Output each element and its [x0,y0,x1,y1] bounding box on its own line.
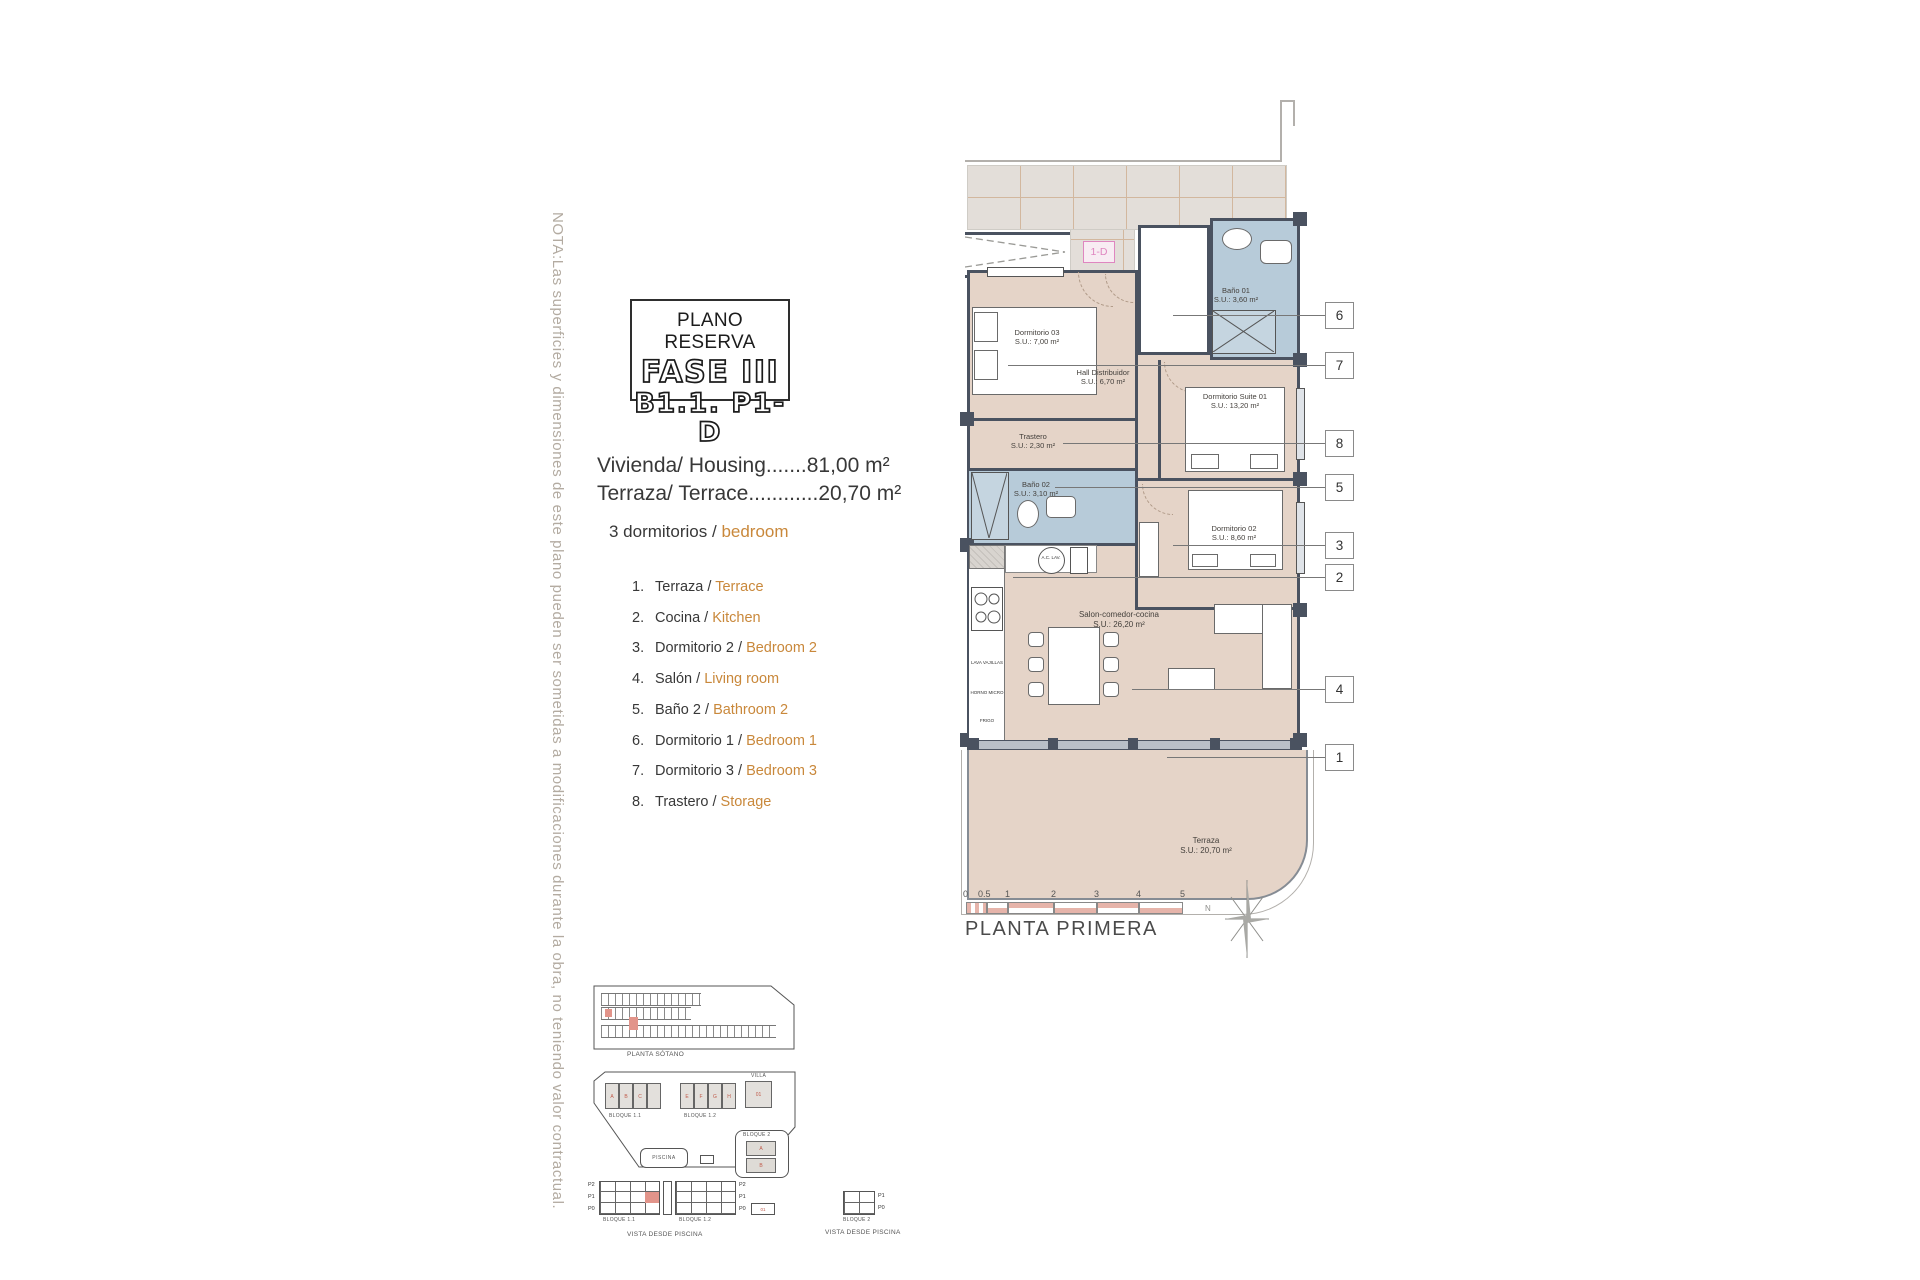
column [1293,212,1307,226]
pillow-icon [1250,454,1278,469]
unit-e: E [680,1083,694,1109]
leader-line [1167,757,1325,758]
room-label-trastero: TrasteroS.U.: 2,30 m² [1002,432,1064,450]
scale-seg [987,902,1008,914]
shower-icon [971,472,1009,540]
wall [1158,360,1161,480]
scale-seg [1097,902,1139,914]
parking-row [601,993,701,1006]
toilet-icon [1017,500,1039,528]
room-label-terraza: TerrazaS.U.: 20,70 m² [1170,836,1242,855]
chair-icon [1103,657,1119,672]
wall [1135,478,1138,610]
block2-unit-a: A [746,1141,776,1156]
block12-caption: BLOQUE 1.2 [684,1113,716,1119]
room-legend: 1.Terraza / Terrace 2.Cocina / Kitchen 3… [632,572,817,818]
terrace-area: Terraza/ Terrace............20,70 m² [597,480,901,508]
wardrobe-icon [1139,522,1159,577]
shower-icon [1212,310,1276,354]
highlighted-storage [605,1009,612,1017]
leader-line [1055,487,1325,488]
unit-f: F [694,1083,708,1109]
bedrooms-sep: / [707,522,721,541]
window [1296,502,1305,574]
elevation-block12-caption: BLOQUE 1.2 [679,1217,711,1223]
scale-tick: 0.5 [978,889,991,899]
bedrooms-en: bedroom [721,522,788,541]
boundary-line [1280,100,1282,161]
floor-plan-sheet: NOTA:Las superficies y dimensiones de es… [0,0,1920,1280]
chair-icon [1103,632,1119,647]
leader-line [1173,315,1325,316]
callout-6: 6 [1325,302,1354,329]
callout-7: 7 [1325,352,1354,379]
stairs-icon [965,235,1070,269]
floor-label-p0: P0 [588,1206,595,1212]
scale-seg [1054,902,1097,914]
unit-g: G [708,1083,722,1109]
pillow-icon [1191,454,1219,469]
unit-h: H [722,1083,736,1109]
scale-tick: 1 [1005,889,1010,899]
callout-3: 3 [1325,532,1354,559]
sofa-icon [1262,604,1292,689]
block2-unit-b: B [746,1158,776,1173]
pillow-icon [1192,554,1218,567]
room-label-bano01: Baño 01S.U.: 3,60 m² [1205,286,1267,304]
basement-caption: PLANTA SÓTANO [627,1051,684,1058]
cabinet-icon [1070,547,1088,574]
fridge-label: FRIGO [970,718,1004,723]
legend-item-dormitorio2: 3.Dormitorio 2 / Bedroom 2 [632,633,817,664]
pillow-icon [974,350,998,380]
scale-tick: 4 [1136,889,1141,899]
elevation-block12 [675,1181,736,1215]
leader-line [1173,545,1325,546]
elevation-villa: 01 [751,1203,775,1215]
chair-icon [1103,682,1119,697]
parking-row [601,1025,776,1038]
elevation-core [663,1181,672,1215]
sink-icon [1260,240,1292,264]
oven-label: HORNO MICRO [970,690,1004,695]
legend-item-dormitorio1: 6.Dormitorio 1 / Bedroom 1 [632,726,817,757]
wall [967,418,1137,421]
site-shed [700,1155,714,1164]
callout-5: 5 [1325,474,1354,501]
callout-8: 8 [1325,430,1354,457]
floor-label: P0 [878,1205,885,1211]
title-block: PLANO RESERVA FASE III B1.1. P1-D [630,299,790,401]
washer-icon [1038,547,1065,574]
floor-label: P0 [739,1206,746,1212]
callout-1: 1 [1325,744,1354,771]
north-label: N [1205,904,1211,913]
floor-label-p2: P2 [588,1182,595,1188]
boundary-line [1293,100,1295,126]
floor-caption: PLANTA PRIMERA [965,918,1158,941]
unit-b: B [619,1083,633,1109]
floor-label: P1 [739,1194,746,1200]
room-label-bano02: Baño 02S.U.: 3,10 m² [1005,480,1067,498]
kitchen-column [969,545,1005,740]
window [1296,388,1305,460]
legend-item-cocina: 2.Cocina / Kitchen [632,603,817,634]
compass-icon [1215,878,1279,960]
chair-icon [1028,682,1044,697]
chair-icon [1028,632,1044,647]
room-label-suite: Dormitorio Suite 01S.U.: 13,20 m² [1188,392,1282,410]
legend-item-salon: 4.Salón / Living room [632,664,817,695]
scale-tick: 0 [963,889,968,899]
leader-line [1132,689,1325,690]
column [1293,472,1307,486]
scale-seg [966,902,987,914]
scale-seg [1008,902,1054,914]
scale-tick: 5 [1180,889,1185,899]
scale-tick: 3 [1094,889,1099,899]
parking-row [601,1007,691,1020]
villa-caption: VILLA [751,1073,766,1079]
pillow-icon [1250,554,1276,567]
site-diagrams: PLANTA SÓTANO A B C BLOQUE 1.1 E F G H B… [585,955,925,1265]
room-label-dorm03: Dormitorio 03S.U.: 7,00 m² [998,328,1076,346]
legend-item-dormitorio3: 7.Dormitorio 3 / Bedroom 3 [632,756,817,787]
unit-d-highlighted [647,1083,661,1109]
unit-code: B1.1. P1-D [632,389,788,447]
scale-seg [1139,902,1183,914]
room-label-hall: Hall DistribuidorS.U.: 6,70 m² [1072,368,1134,386]
boundary-line [965,160,1282,162]
block11-caption: BLOQUE 1.1 [609,1113,641,1119]
washer-label: A.C. LAV. [1036,555,1066,560]
column [960,412,974,426]
window [987,267,1064,277]
boundary-line [1280,100,1294,102]
coffee-table-icon [1168,668,1215,690]
dishwasher-label: LAVA VAJILLAS [970,660,1004,665]
lightwell [1138,225,1210,355]
legend-item-terraza: 1.Terraza / Terrace [632,572,817,603]
view-caption2: VISTA DESDE PISCINA [825,1229,901,1236]
floor-label-p1: P1 [588,1194,595,1200]
wall [967,468,1137,471]
leader-line [1063,443,1325,444]
column [1293,603,1307,617]
hob-icon [971,587,1003,631]
bedrooms-line: 3 dormitorios / bedroom [609,522,789,542]
unit-c: C [633,1083,647,1109]
leader-line [1013,577,1325,578]
wall [1135,478,1300,481]
unit-a: A [605,1083,619,1109]
toilet-icon [1222,228,1252,250]
legend-item-trastero: 8.Trastero / Storage [632,787,817,818]
floor-label: P1 [878,1193,885,1199]
phase-title: FASE III [632,357,788,389]
dining-table-icon [1048,627,1100,705]
area-summary: Vivienda/ Housing.......81,00 m² Terraza… [597,452,901,508]
floor-label: P2 [739,1182,746,1188]
chair-icon [1028,657,1044,672]
counter-hatch [969,545,1005,569]
elevation-block11-caption: BLOQUE 1.1 [603,1217,635,1223]
view-caption: VISTA DESDE PISCINA [627,1231,703,1238]
room-label-dorm02: Dormitorio 02S.U.: 8,60 m² [1190,524,1278,542]
housing-area: Vivienda/ Housing.......81,00 m² [597,452,901,480]
sink-icon [1046,496,1076,518]
villa-unit: 01 [745,1081,772,1108]
bedrooms-es: 3 dormitorios [609,522,707,541]
elevation-highlight [645,1192,659,1203]
leader-line [1008,365,1325,366]
pillow-icon [974,312,998,342]
elevation-block2 [843,1191,875,1215]
floor-plan: 1-D [960,92,1400,972]
legend-item-bano2: 5.Baño 2 / Bathroom 2 [632,695,817,726]
room-label-salon: Salon-comedor-cocinaS.U.: 26,20 m² [1074,610,1164,629]
block2-caption: BLOQUE 2 [743,1132,770,1138]
callout-2: 2 [1325,564,1354,591]
unit-tag: 1-D [1083,241,1115,263]
callout-4: 4 [1325,676,1354,703]
plan-title: PLANO RESERVA [632,310,788,354]
scale-tick: 2 [1051,889,1056,899]
elevation-block2-caption: BLOQUE 2 [843,1217,870,1223]
disclaimer-note: NOTA:Las superficies y dimensiones de es… [549,212,566,1092]
highlighted-parking [629,1017,638,1030]
pool: PISCINA [640,1148,688,1168]
